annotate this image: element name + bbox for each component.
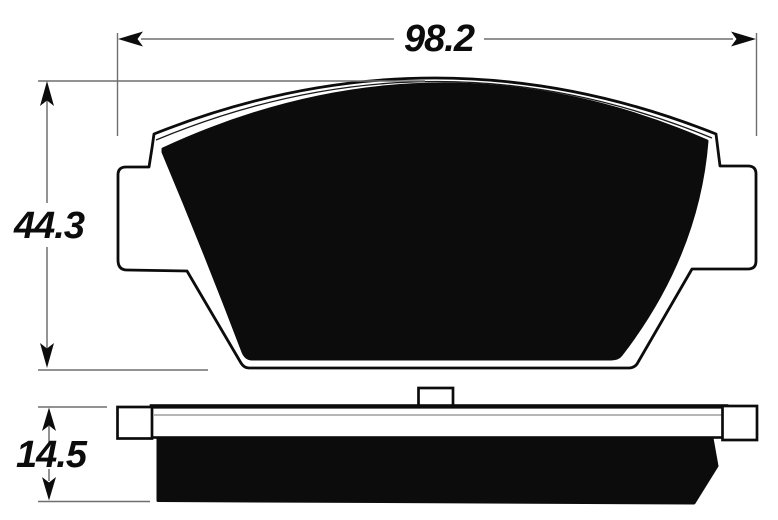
brake-pad-drawing: 98.2 44.3 14.5: [0, 0, 778, 520]
side-view-left-lug: [118, 407, 153, 439]
technical-drawing-canvas: 98.2 44.3 14.5: [0, 0, 778, 520]
side-view-wear-tab: [419, 388, 454, 407]
thickness-dimension-label: 14.5: [16, 434, 88, 476]
side-view-backing-plate: [151, 406, 727, 438]
width-arrowhead-left: [118, 32, 143, 47]
side-view: [118, 388, 758, 503]
width-arrowhead-right: [731, 32, 756, 47]
side-view-friction-material: [158, 438, 717, 503]
width-dimension-label: 98.2: [404, 18, 475, 60]
height-dimension-label: 44.3: [13, 205, 85, 247]
side-view-right-lug: [723, 406, 758, 440]
front-view-friction-material: [163, 84, 707, 359]
front-view: [118, 78, 756, 368]
